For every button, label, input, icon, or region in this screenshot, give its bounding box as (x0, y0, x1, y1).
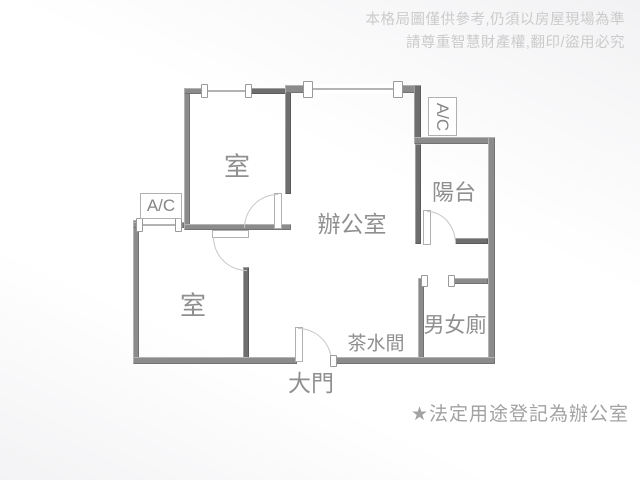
door-jamb (421, 275, 428, 287)
wall-bottom-left-seg (133, 357, 297, 364)
ac-unit-left-label: A/C (147, 196, 175, 216)
door-swing-arc-balcony (427, 211, 456, 244)
wall-room-b-left (133, 220, 139, 363)
ac-unit-right-label: A/C (433, 102, 453, 130)
wall-restroom-top (452, 278, 488, 284)
window-jamb (175, 218, 182, 232)
door-swing-arc-room-a (244, 194, 278, 228)
door-jamb (448, 275, 455, 287)
wall-balcony-bottom (455, 238, 488, 244)
label-office: 辦公室 (318, 205, 387, 239)
label-main-door: 大門 (288, 364, 334, 398)
wall-right-main (488, 137, 495, 363)
wall-bottom-right-seg (331, 357, 495, 364)
disclaimer-line2: 請尊重智慧財產權,翻印/盜用必究 (365, 32, 625, 55)
window-office-line (312, 88, 394, 90)
label-restroom: 男女廁 (424, 309, 487, 339)
window-jamb (245, 84, 252, 98)
window-jamb (303, 81, 313, 98)
label-room-top-left: 室 (224, 147, 250, 184)
wall-room-b-right (243, 267, 249, 363)
wall-right-upper (414, 85, 421, 143)
brand-banner: ★★★ W 加入有勝 戰無不勝 (0, 426, 340, 480)
ac-unit-right: A/C (428, 97, 457, 136)
wall-room-a-left (184, 88, 190, 230)
label-room-bottom-left: 室 (180, 286, 206, 323)
door-swing-arc-room-b (213, 237, 247, 271)
wall-room-a-right (285, 88, 291, 194)
wall-balcony-top (414, 137, 495, 144)
window-room-b-line (141, 224, 177, 226)
floorplan-page: 本格局圖僅供參考,仍須以房屋現場為準 請尊重智慧財產權,翻印/盜用必究 A/C … (0, 0, 640, 480)
door-swing-arc-main (298, 328, 332, 362)
wall-balcony-left (415, 144, 421, 244)
window-jamb (136, 218, 143, 232)
window-jamb (201, 84, 208, 98)
disclaimer: 本格局圖僅供參考,仍須以房屋現場為準 請尊重智慧財產權,翻印/盜用必究 (365, 9, 625, 55)
ac-unit-left: A/C (140, 193, 182, 219)
window-jamb (393, 81, 403, 98)
window-room-a-line (205, 90, 247, 92)
legal-note: ★法定用途登記為辦公室 (411, 399, 629, 426)
label-balcony: 陽台 (432, 175, 476, 207)
label-pantry: 茶水間 (347, 329, 404, 356)
disclaimer-line1: 本格局圖僅供參考,仍須以房屋現場為準 (365, 9, 625, 32)
